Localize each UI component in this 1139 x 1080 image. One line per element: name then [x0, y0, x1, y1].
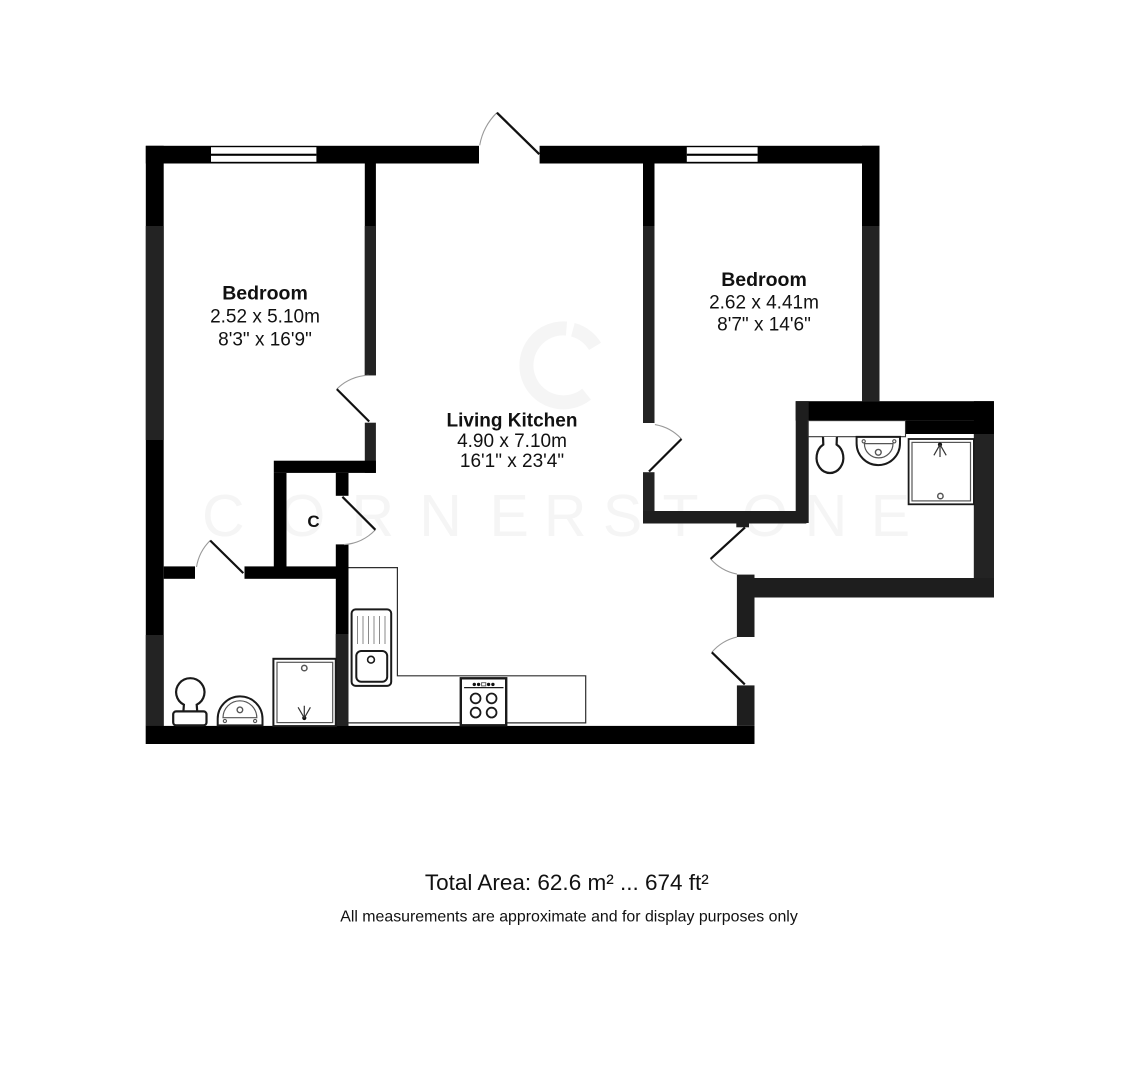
- svg-text:2.52 x 5.10m: 2.52 x 5.10m: [210, 307, 320, 328]
- svg-text:Total Area: 62.6 m² ... 674 ft: Total Area: 62.6 m² ... 674 ft²: [425, 870, 709, 895]
- svg-text:8'3" x 16'9": 8'3" x 16'9": [218, 330, 312, 351]
- svg-text:Living Kitchen: Living Kitchen: [447, 410, 578, 431]
- svg-text:Bedroom: Bedroom: [222, 283, 308, 305]
- svg-text:16'1" x 23'4": 16'1" x 23'4": [460, 451, 564, 472]
- svg-text:2.62 x 4.41m: 2.62 x 4.41m: [709, 293, 819, 314]
- svg-text:All measurements are approxima: All measurements are approximate and for…: [340, 909, 798, 926]
- svg-text:Bedroom: Bedroom: [721, 269, 807, 291]
- svg-text:C: C: [307, 512, 319, 531]
- svg-text:8'7" x 14'6": 8'7" x 14'6": [717, 314, 811, 335]
- svg-text:4.90 x 7.10m: 4.90 x 7.10m: [457, 431, 567, 452]
